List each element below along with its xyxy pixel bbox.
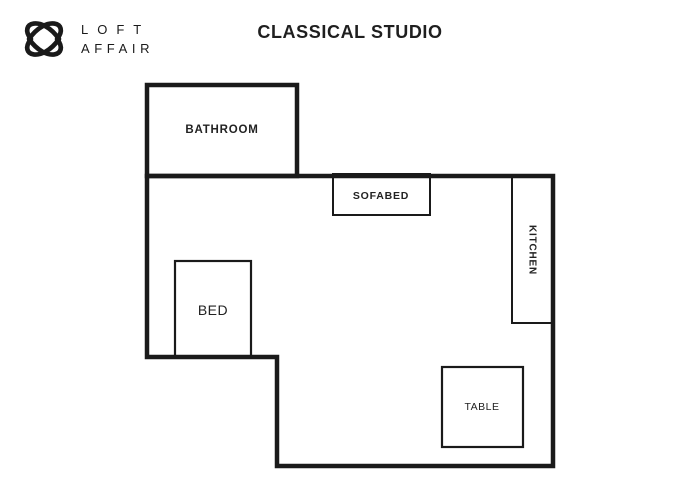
bed-label: BED — [198, 302, 228, 318]
bathroom-label: BATHROOM — [185, 124, 258, 136]
sofabed-label: SOFABED — [353, 190, 409, 202]
floorplan: BATHROOM SOFABED KITCHEN BED TABLE — [0, 0, 700, 500]
floor-plan-page: LOFT AFFAIR CLASSICAL STUDIO BATHROOM SO… — [0, 0, 700, 500]
table-label: TABLE — [465, 401, 500, 413]
kitchen-label: KITCHEN — [527, 225, 538, 275]
